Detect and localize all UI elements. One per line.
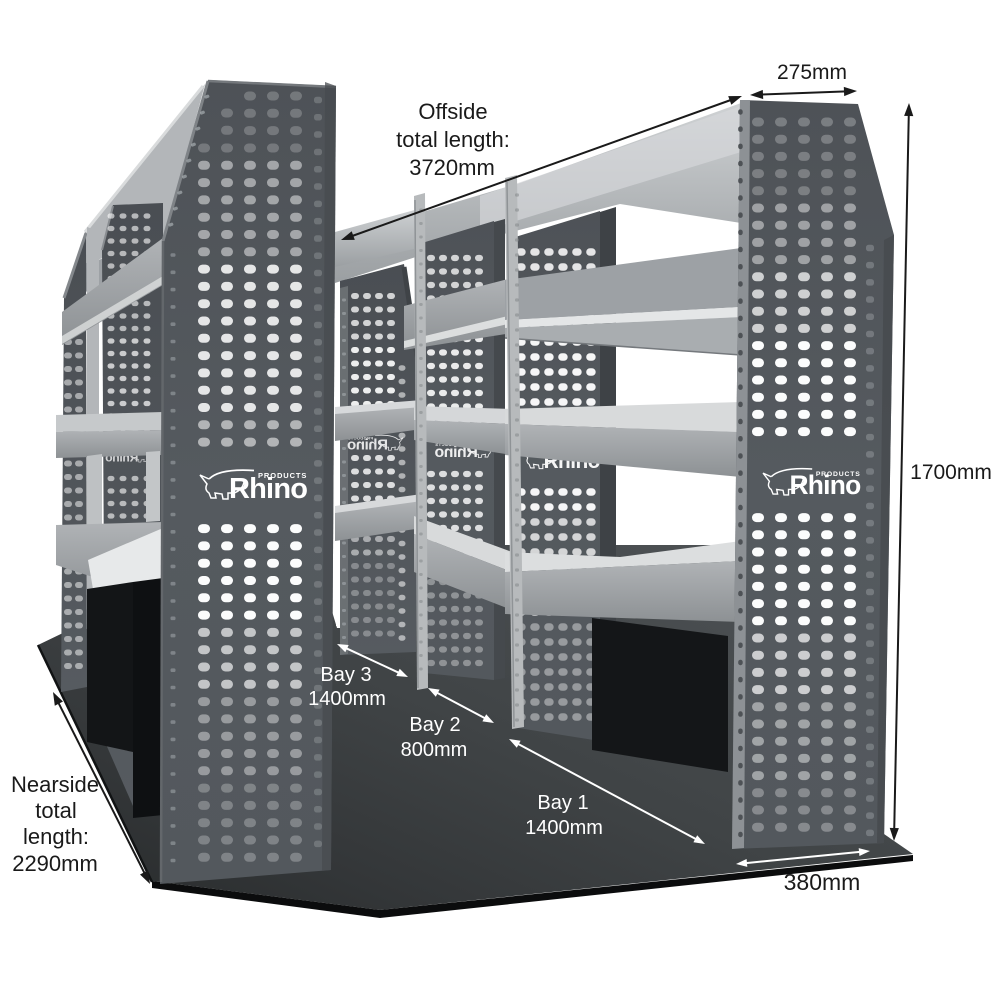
svg-text:Rhino: Rhino xyxy=(789,470,861,500)
svg-text:Rhino: Rhino xyxy=(229,473,307,505)
svg-text:Offside: Offside xyxy=(418,99,487,124)
svg-text:1700mm: 1700mm xyxy=(910,461,992,484)
svg-text:Bay 1: Bay 1 xyxy=(537,792,588,814)
svg-text:total: total xyxy=(35,798,77,823)
svg-text:total length:: total length: xyxy=(396,127,510,152)
svg-text:800mm: 800mm xyxy=(401,739,468,761)
svg-text:Bay 2: Bay 2 xyxy=(409,714,460,736)
svg-text:275mm: 275mm xyxy=(777,61,847,84)
svg-text:length:: length: xyxy=(23,824,89,849)
svg-text:Nearside: Nearside xyxy=(11,772,99,797)
svg-text:2290mm: 2290mm xyxy=(12,851,98,876)
svg-text:1400mm: 1400mm xyxy=(308,688,386,710)
svg-text:380mm: 380mm xyxy=(784,869,861,895)
svg-text:Bay 3: Bay 3 xyxy=(320,664,371,686)
svg-text:Rhino: Rhino xyxy=(347,437,388,454)
svg-text:1400mm: 1400mm xyxy=(525,817,603,839)
svg-text:3720mm: 3720mm xyxy=(409,155,495,180)
